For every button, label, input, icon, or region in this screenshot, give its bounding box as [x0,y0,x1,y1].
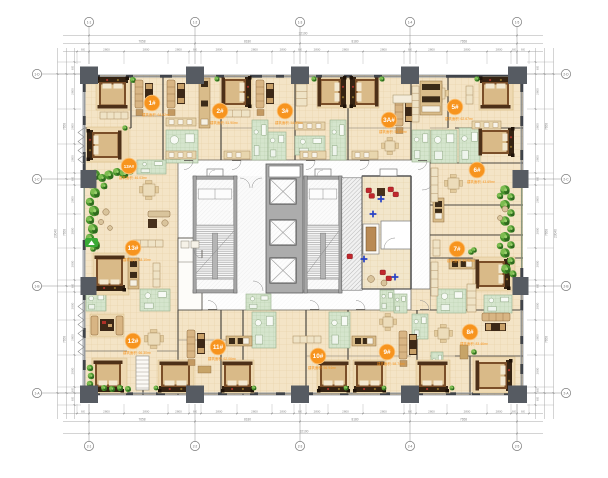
svg-text:3A#: 3A# [383,117,395,124]
svg-text:1-D: 1-D [34,72,40,76]
svg-text:600: 600 [521,411,526,414]
svg-text:600: 600 [512,49,517,52]
svg-text:600: 600 [71,176,74,181]
svg-text:7658: 7658 [460,40,467,44]
svg-text:7658: 7658 [62,336,66,343]
svg-text:2800: 2800 [428,410,435,414]
svg-text:2800: 2800 [535,227,539,234]
svg-text:1-5: 1-5 [515,20,520,24]
svg-text:13#: 13# [128,245,139,252]
svg-text:建筑面积: 62.06m²: 建筑面积: 62.06m² [208,356,237,361]
svg-text:10#: 10# [313,353,324,360]
svg-text:9#: 9# [383,349,391,356]
svg-text:2-5: 2-5 [515,444,520,448]
svg-text:2800: 2800 [496,410,503,414]
svg-text:2800: 2800 [342,410,349,414]
svg-text:2800: 2800 [251,410,258,414]
svg-text:7658: 7658 [460,418,467,422]
svg-text:8180: 8180 [351,418,358,422]
svg-text:23040: 23040 [553,229,557,238]
svg-text:600: 600 [81,49,86,52]
svg-text:2800: 2800 [535,260,539,267]
svg-text:7#: 7# [453,246,461,253]
svg-text:2800: 2800 [380,410,387,414]
svg-text:600: 600 [81,411,86,414]
svg-text:8180: 8180 [244,40,251,44]
svg-text:600: 600 [536,65,539,70]
svg-text:2-4: 2-4 [408,444,413,448]
svg-text:建筑面积: 45.92m²: 建筑面积: 45.92m² [447,258,476,263]
svg-text:建筑面积: 58.74m²: 建筑面积: 58.74m² [377,361,406,366]
svg-text:2800: 2800 [535,302,539,309]
svg-text:建筑面积: 48.10m²: 建筑面积: 48.10m² [123,257,152,262]
svg-text:2800: 2800 [70,155,74,162]
svg-text:7658: 7658 [544,229,548,236]
svg-text:2-C: 2-C [563,177,569,181]
svg-text:2800: 2800 [535,123,539,130]
svg-text:8180: 8180 [351,40,358,44]
svg-text:建筑面积: 56.94m²: 建筑面积: 56.94m² [308,365,337,370]
svg-text:1-A: 1-A [35,391,41,395]
svg-text:2-1: 2-1 [87,444,92,448]
svg-text:7658: 7658 [544,336,548,343]
svg-text:2800: 2800 [535,88,539,95]
svg-text:2800: 2800 [496,48,503,52]
svg-text:1-2: 1-2 [193,20,198,24]
svg-text:2800: 2800 [70,302,74,309]
svg-text:600: 600 [71,65,74,70]
svg-text:2800: 2800 [280,48,287,52]
svg-text:32100: 32100 [300,430,309,434]
svg-text:600: 600 [521,49,526,52]
svg-text:13A#: 13A# [124,164,135,169]
svg-text:2800: 2800 [70,227,74,234]
svg-text:建筑面积: 54.89m²: 建筑面积: 54.89m² [379,129,408,134]
svg-text:600: 600 [536,283,539,288]
svg-text:建筑面积: 66.30m²: 建筑面积: 66.30m² [123,350,152,355]
svg-text:建筑面积: 51.90m²: 建筑面积: 51.90m² [210,120,239,125]
svg-text:600: 600 [71,396,74,401]
svg-text:600: 600 [512,411,517,414]
svg-text:2800: 2800 [342,48,349,52]
svg-text:2800: 2800 [103,48,110,52]
svg-text:2800: 2800 [143,410,150,414]
svg-text:600: 600 [536,387,539,392]
svg-text:1-3: 1-3 [298,20,303,24]
svg-text:1-4: 1-4 [408,20,413,24]
svg-text:7658: 7658 [62,229,66,236]
svg-text:2-2: 2-2 [193,444,198,448]
svg-text:8#: 8# [466,329,474,336]
svg-text:1-B: 1-B [35,284,40,288]
svg-text:2800: 2800 [216,48,223,52]
svg-text:5#: 5# [451,104,459,111]
svg-text:2800: 2800 [314,410,321,414]
svg-text:600: 600 [408,49,413,52]
svg-text:2800: 2800 [70,367,74,374]
svg-text:600: 600 [193,49,198,52]
svg-text:12#: 12# [128,338,139,345]
svg-text:2800: 2800 [535,334,539,341]
svg-text:600: 600 [71,283,74,288]
svg-text:2800: 2800 [535,155,539,162]
svg-text:2800: 2800 [535,367,539,374]
svg-text:2800: 2800 [216,410,223,414]
svg-text:2800: 2800 [70,260,74,267]
svg-text:建筑面积: 64.62m²: 建筑面积: 64.62m² [142,112,171,117]
svg-text:11#: 11# [213,344,224,351]
svg-text:建筑面积: 43.69m²: 建筑面积: 43.69m² [467,179,496,184]
svg-text:2800: 2800 [103,410,110,414]
svg-text:7658: 7658 [544,123,548,130]
svg-text:7658: 7658 [62,123,66,130]
svg-text:2800: 2800 [70,88,74,95]
svg-text:2800: 2800 [280,410,287,414]
svg-text:2800: 2800 [143,48,150,52]
svg-text:2-B: 2-B [564,284,569,288]
svg-text:2800: 2800 [251,48,258,52]
svg-text:600: 600 [298,411,303,414]
svg-text:23040: 23040 [53,229,57,238]
svg-text:2800: 2800 [70,196,74,203]
svg-text:6#: 6# [473,167,481,174]
svg-text:2-D: 2-D [563,72,569,76]
svg-text:建筑面积: 54.89m²: 建筑面积: 54.89m² [275,120,304,125]
svg-text:2800: 2800 [428,48,435,52]
svg-text:2800: 2800 [314,48,321,52]
svg-text:600: 600 [298,49,303,52]
svg-text:1-C: 1-C [34,177,40,181]
svg-text:建筑面积: 46.03m²: 建筑面积: 46.03m² [119,175,148,180]
svg-text:3#: 3# [281,108,289,115]
svg-text:600: 600 [193,411,198,414]
svg-text:7658: 7658 [138,418,145,422]
svg-text:2800: 2800 [464,410,471,414]
svg-text:600: 600 [536,396,539,401]
svg-text:1-1: 1-1 [87,20,92,24]
svg-text:600: 600 [536,176,539,181]
svg-text:600: 600 [71,387,74,392]
svg-text:2800: 2800 [175,48,182,52]
svg-text:2#: 2# [216,108,224,115]
svg-text:8180: 8180 [244,418,251,422]
svg-text:7658: 7658 [138,40,145,44]
svg-text:2800: 2800 [70,334,74,341]
svg-text:建筑面积: 83.46m²: 建筑面积: 83.46m² [460,341,489,346]
svg-text:2-A: 2-A [564,391,570,395]
svg-text:2800: 2800 [380,48,387,52]
svg-text:600: 600 [408,411,413,414]
svg-text:建筑面积: 62.67m²: 建筑面积: 62.67m² [445,116,474,121]
svg-text:2800: 2800 [535,196,539,203]
svg-text:1#: 1# [148,100,156,107]
svg-text:2-3: 2-3 [298,444,303,448]
svg-text:2800: 2800 [464,48,471,52]
svg-text:2800: 2800 [70,123,74,130]
svg-text:2800: 2800 [175,410,182,414]
